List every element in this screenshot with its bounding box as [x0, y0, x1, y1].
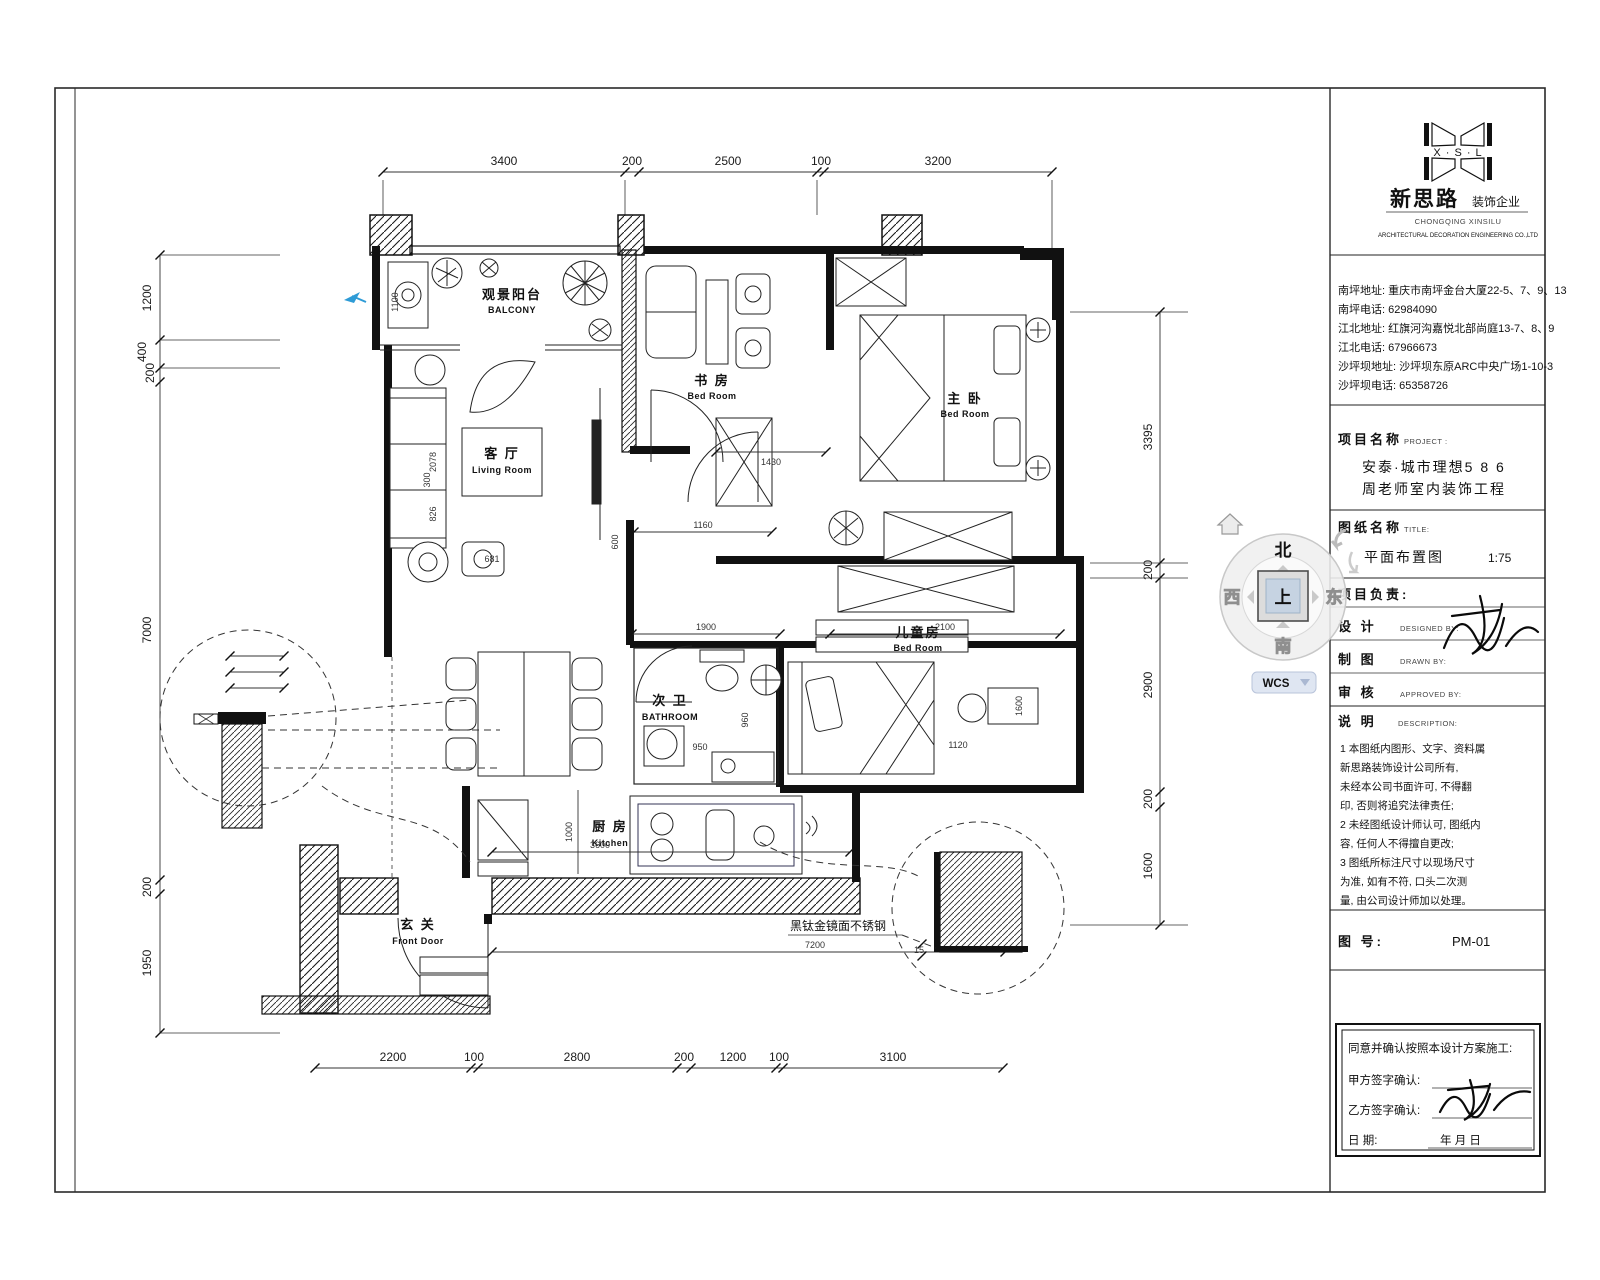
room-label-balcony-en: BALCONY [488, 305, 536, 315]
inner-dim: 1100 [390, 292, 400, 311]
inner-dim: 15 [914, 945, 924, 955]
contact-line: 江北地址: 红旗河沟嘉悦北部尚庭13-7、8、9 [1338, 321, 1554, 335]
sheet-number-block: 图 号: PM-01 [1338, 934, 1490, 949]
sheet-scale: 1:75 [1488, 551, 1512, 565]
viewcube-north[interactable]: 北 [1275, 541, 1292, 560]
confirm-title: 同意并确认按照本设计方案施工: [1348, 1041, 1512, 1055]
contact-block: 南坪地址: 重庆市南坪金台大厦22-5、7、9、13 南坪电话: 6298409… [1338, 283, 1567, 392]
note-line: 印, 否则将追究法律责任; [1340, 799, 1454, 812]
dim-bottom: 100 [464, 1050, 484, 1064]
notes-label: 说 明 [1338, 714, 1377, 729]
inner-dim: 1430 [761, 457, 781, 467]
wcs-dropdown[interactable]: WCS [1252, 672, 1316, 693]
wcs-label: WCS [1263, 678, 1290, 690]
room-label-living: 客 厅 [484, 446, 520, 461]
drawing-canvas: X · S · L 新思路 装饰企业 CHONGQING XINSILU ARC… [0, 0, 1600, 1280]
room-label-balcony: 观景阳台 [482, 287, 542, 302]
viewcube-top-face-label[interactable]: 上 [1275, 588, 1292, 607]
room-label-entry-en: Front Door [392, 936, 444, 946]
notes-label-en: DESCRIPTION: [1398, 719, 1457, 728]
confirm-date-value: 年 月 日 [1440, 1133, 1481, 1147]
dim-top: 200 [622, 154, 642, 168]
confirm-party-b: 乙方签字确认: [1348, 1103, 1420, 1117]
company-logo: X · S · L 新思路 装饰企业 CHONGQING XINSILU ARC… [1378, 123, 1539, 239]
logo-initials: X · S · L [1433, 147, 1482, 159]
contact-line: 沙坪坝地址: 沙坪坝东原ARC中央广场1-10-3 [1338, 359, 1553, 373]
inner-dim: 960 [740, 712, 750, 727]
viewcube-east[interactable]: 东 [1326, 587, 1343, 607]
logo-name-tag: 装饰企业 [1472, 194, 1520, 209]
role-approve: 审 核 [1338, 685, 1377, 700]
dim-bottom: 2800 [564, 1050, 591, 1064]
dim-left: 1950 [140, 949, 154, 976]
inner-dim: 300 [422, 472, 432, 487]
roles-block: 项目负责: 设 计 DESIGNED BY: 制 图 DRAWN BY: 审 核… [1338, 587, 1538, 700]
dim-left: 400 [135, 342, 149, 362]
inner-dim: 3600 [590, 840, 610, 850]
note-line: 量, 由公司设计师加以处理。 [1340, 894, 1472, 907]
designer-signature [1444, 596, 1538, 654]
room-label-kids: 儿童房 [894, 625, 940, 640]
dining-set [446, 652, 602, 776]
inner-dim: 950 [692, 742, 707, 752]
dim-right: 200 [1141, 560, 1155, 580]
dim-right: 1600 [1141, 852, 1155, 879]
inner-dim: 681 [484, 554, 499, 564]
shoe-cabinet [420, 975, 488, 995]
sheet-no-value: PM-01 [1452, 934, 1490, 949]
inner-dim: 1600 [1014, 696, 1024, 716]
role-lead: 项目负责: [1338, 587, 1409, 602]
living-rug [462, 428, 542, 496]
inner-dim: 2100 [935, 622, 955, 632]
inner-dim: 1900 [696, 622, 716, 632]
confirmation-block: 同意并确认按照本设计方案施工: 甲方签字确认: 乙方签字确认: 日 期: 年 月… [1336, 1024, 1540, 1156]
viewcube-roll-arrow-icon[interactable] [1332, 530, 1346, 546]
note-line: 1 本图纸内图形、文字、资料属 [1340, 742, 1485, 755]
contact-line: 南坪电话: 62984090 [1338, 303, 1437, 316]
osnap-marker [344, 292, 366, 303]
project-line2: 周老师室内装饰工程 [1362, 481, 1506, 497]
note-line: 3 图纸所标注尺寸以现场尺寸 [1340, 856, 1475, 869]
inner-dim: 1000 [564, 822, 574, 842]
inner-dim: 1160 [693, 520, 712, 530]
logo-name-cn: 新思路 [1390, 187, 1459, 211]
role-approve-en: APPROVED BY: [1400, 690, 1461, 699]
material-annotation: 黑钛金镜面不锈钢 [790, 918, 886, 933]
note-line: 容, 任何人不得擅自更改; [1340, 837, 1454, 850]
dim-top: 100 [811, 154, 831, 168]
note-line: 2 未经图纸设计师认可, 图纸内 [1340, 818, 1481, 831]
dim-left: 200 [143, 363, 157, 383]
project-name-block: 项目名称 PROJECT : 安泰·城市理想5 8 6 周老师室内装饰工程 [1338, 432, 1506, 497]
viewcube-roll-arrow2-icon[interactable] [1349, 552, 1357, 572]
side-table [415, 355, 445, 385]
sheet-name: 平面布置图 [1364, 549, 1444, 565]
note-line: 为准, 如有不符, 口头二次测 [1340, 875, 1467, 888]
sheet-title-block: 图纸名称 TITLE: 平面布置图 1:75 [1338, 520, 1512, 565]
project-label: 项目名称 [1338, 432, 1402, 447]
role-design: 设 计 [1338, 619, 1377, 634]
decor-fan [470, 361, 535, 413]
title-block: X · S · L 新思路 装饰企业 CHONGQING XINSILU ARC… [1330, 123, 1567, 1156]
inner-dim: 600 [610, 534, 620, 549]
sheet-label: 图纸名称 [1338, 520, 1402, 535]
kitchen-fixtures [478, 796, 817, 876]
inner-dim: 826 [428, 506, 438, 521]
dim-right: 3395 [1141, 423, 1155, 450]
dim-top: 2500 [715, 154, 742, 168]
note-line: 新思路装饰设计公司所有, [1340, 761, 1458, 774]
dim-bottom: 3100 [880, 1050, 907, 1064]
notes-block: 说 明 DESCRIPTION: 1 本图纸内图形、文字、资料属 新思路装饰设计… [1338, 714, 1485, 907]
viewcube-widget[interactable]: 北 西 东 南 上 WCS [1218, 514, 1357, 693]
project-label-en: PROJECT : [1404, 437, 1448, 446]
logo-en-1: CHONGQING XINSILU [1415, 217, 1502, 226]
study-furniture [646, 266, 770, 368]
dim-top: 3400 [491, 154, 518, 168]
confirm-party-a: 甲方签字确认: [1348, 1073, 1420, 1087]
shoe-cabinet-top [420, 957, 488, 973]
dim-right: 2900 [1141, 671, 1155, 698]
dim-left: 7000 [140, 616, 154, 643]
confirm-date-label: 日 期: [1348, 1134, 1377, 1147]
room-label-bath-en: BATHROOM [642, 712, 698, 722]
dim-left: 1200 [140, 284, 154, 311]
dim-bottom: 100 [769, 1050, 789, 1064]
role-draft-en: DRAWN BY: [1400, 657, 1446, 666]
sheet-label-en: TITLE: [1404, 525, 1430, 534]
contact-line: 南坪地址: 重庆市南坪金台大厦22-5、7、9、13 [1338, 283, 1567, 297]
dim-bottom: 1200 [720, 1050, 747, 1064]
viewcube-south[interactable]: 南 [1275, 636, 1292, 656]
contact-line: 江北电话: 67966673 [1338, 341, 1437, 354]
contact-line: 沙坪坝电话: 65358726 [1338, 378, 1448, 392]
room-label-master-en: Bed Room [941, 409, 990, 419]
sheet-no-label: 图 号: [1338, 934, 1384, 949]
viewcube-west[interactable]: 西 [1224, 588, 1241, 607]
room-label-master: 主 卧 [947, 391, 983, 406]
dim-left: 200 [140, 877, 154, 897]
role-design-en: DESIGNED BY: [1400, 624, 1459, 633]
role-draft: 制 图 [1338, 652, 1377, 667]
inner-dim: 7200 [805, 940, 825, 950]
note-line: 未经本公司书面许可, 不得翻 [1340, 780, 1472, 793]
home-icon[interactable] [1218, 514, 1242, 534]
room-label-kids-en: Bed Room [894, 643, 943, 653]
dim-bottom: 2200 [380, 1050, 407, 1064]
project-line1: 安泰·城市理想5 8 6 [1362, 459, 1506, 475]
inner-dim: 2078 [428, 452, 438, 472]
logo-en-2: ARCHITECTURAL DECORATION ENGINEERING CO.… [1378, 233, 1539, 239]
room-label-entry: 玄 关 [400, 917, 436, 932]
dim-top: 3200 [925, 154, 952, 168]
dim-bottom: 200 [674, 1050, 694, 1064]
cad-sheet: { "title_block": { "logo": { "initials":… [0, 0, 1600, 1280]
inner-dim: 1120 [948, 740, 967, 750]
room-label-study-en: Bed Room [688, 391, 737, 401]
room-label-kitchen: 厨 房 [592, 819, 628, 834]
dim-right: 200 [1141, 789, 1155, 809]
room-label-study: 书 房 [694, 373, 730, 388]
tv-panel [592, 420, 601, 504]
room-label-living-en: Living Room [472, 465, 532, 475]
client-signature [1440, 1080, 1530, 1120]
room-label-bath: 次 卫 [652, 693, 688, 708]
